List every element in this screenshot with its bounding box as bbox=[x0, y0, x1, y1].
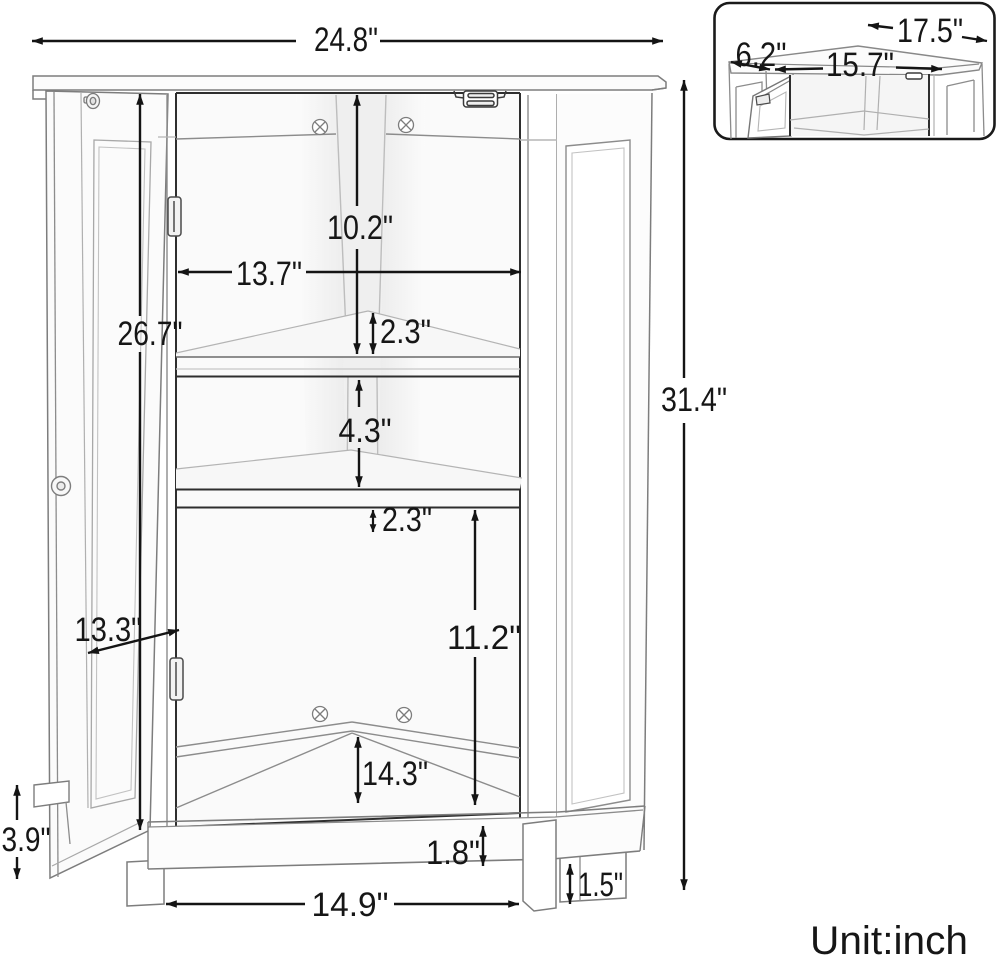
svg-text:Unit:inch: Unit:inch bbox=[810, 919, 968, 959]
svg-text:24.8": 24.8" bbox=[314, 21, 378, 59]
svg-text:4.3": 4.3" bbox=[339, 412, 392, 450]
svg-text:1.8": 1.8" bbox=[426, 834, 480, 872]
svg-text:2.3": 2.3" bbox=[382, 501, 432, 539]
svg-text:26.7": 26.7" bbox=[118, 315, 183, 353]
svg-text:14.3": 14.3" bbox=[362, 755, 428, 793]
svg-text:11.2": 11.2" bbox=[447, 619, 521, 657]
svg-text:13.7": 13.7" bbox=[236, 255, 302, 293]
svg-text:13.3": 13.3" bbox=[75, 611, 142, 649]
svg-text:17.5": 17.5" bbox=[897, 12, 963, 50]
svg-text:3.9": 3.9" bbox=[2, 821, 51, 859]
svg-text:2.3": 2.3" bbox=[380, 313, 431, 351]
svg-text:14.9": 14.9" bbox=[312, 886, 389, 924]
svg-text:15.7": 15.7" bbox=[826, 46, 894, 84]
svg-text:31.4": 31.4" bbox=[661, 381, 727, 419]
svg-text:10.2": 10.2" bbox=[327, 209, 393, 247]
svg-text:1.5": 1.5" bbox=[578, 866, 623, 904]
